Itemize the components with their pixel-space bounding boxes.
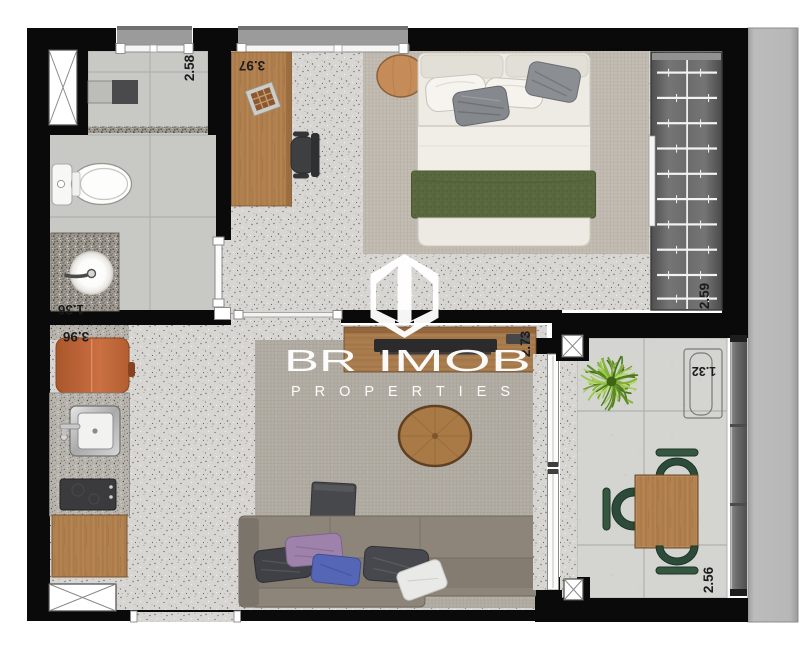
- svg-text:BR: BR: [284, 343, 357, 378]
- svg-text:2.58: 2.58: [182, 54, 197, 81]
- svg-text:3.97: 3.97: [239, 58, 265, 73]
- svg-text:2.59: 2.59: [697, 283, 712, 309]
- svg-text:1.36: 1.36: [57, 302, 84, 317]
- svg-text:3.96: 3.96: [62, 329, 89, 344]
- svg-text:1.32: 1.32: [692, 364, 716, 378]
- svg-text:IMOB: IMOB: [377, 343, 531, 378]
- svg-text:2.56: 2.56: [701, 566, 716, 593]
- svg-text:PROPERTIES: PROPERTIES: [291, 384, 520, 400]
